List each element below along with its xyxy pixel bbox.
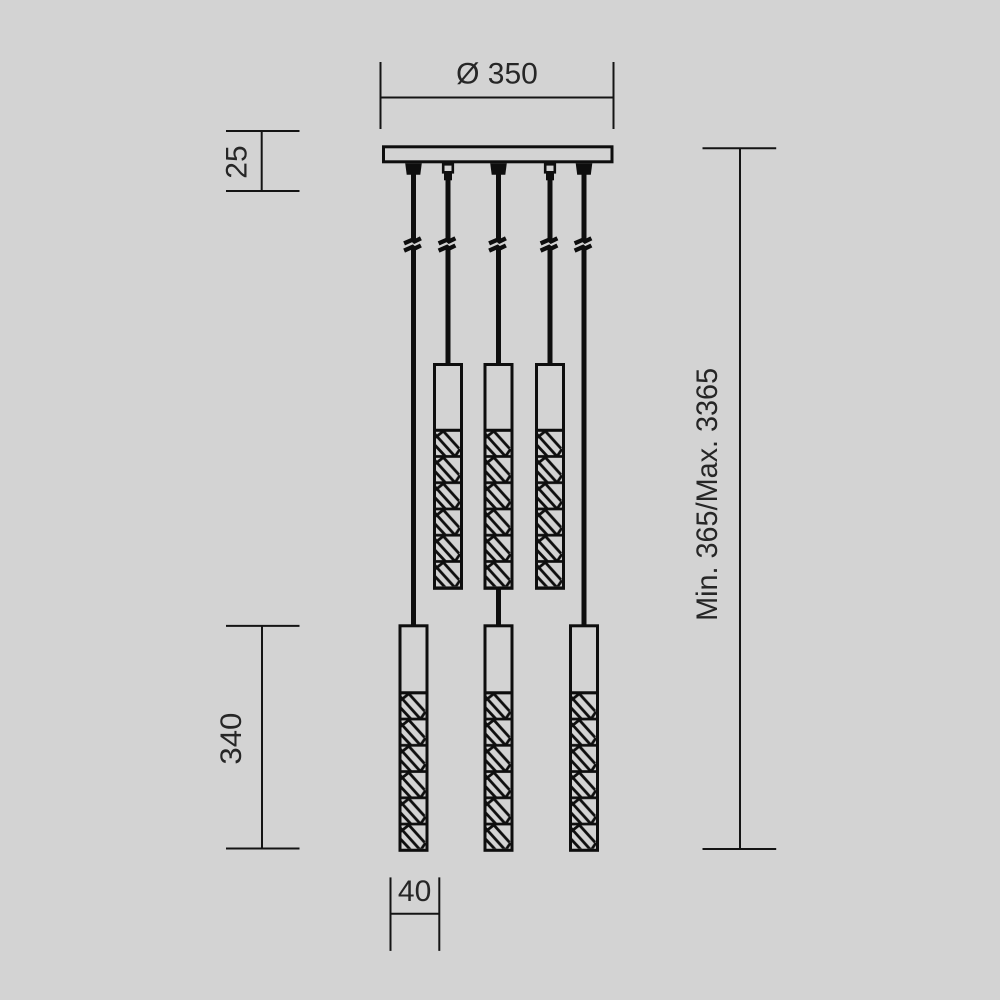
svg-text:40: 40 (398, 875, 431, 908)
svg-text:Min. 365/Max. 3365: Min. 365/Max. 3365 (691, 368, 724, 621)
svg-text:25: 25 (220, 145, 253, 178)
svg-text:340: 340 (215, 713, 248, 765)
svg-text:Ø 350: Ø 350 (456, 58, 538, 91)
